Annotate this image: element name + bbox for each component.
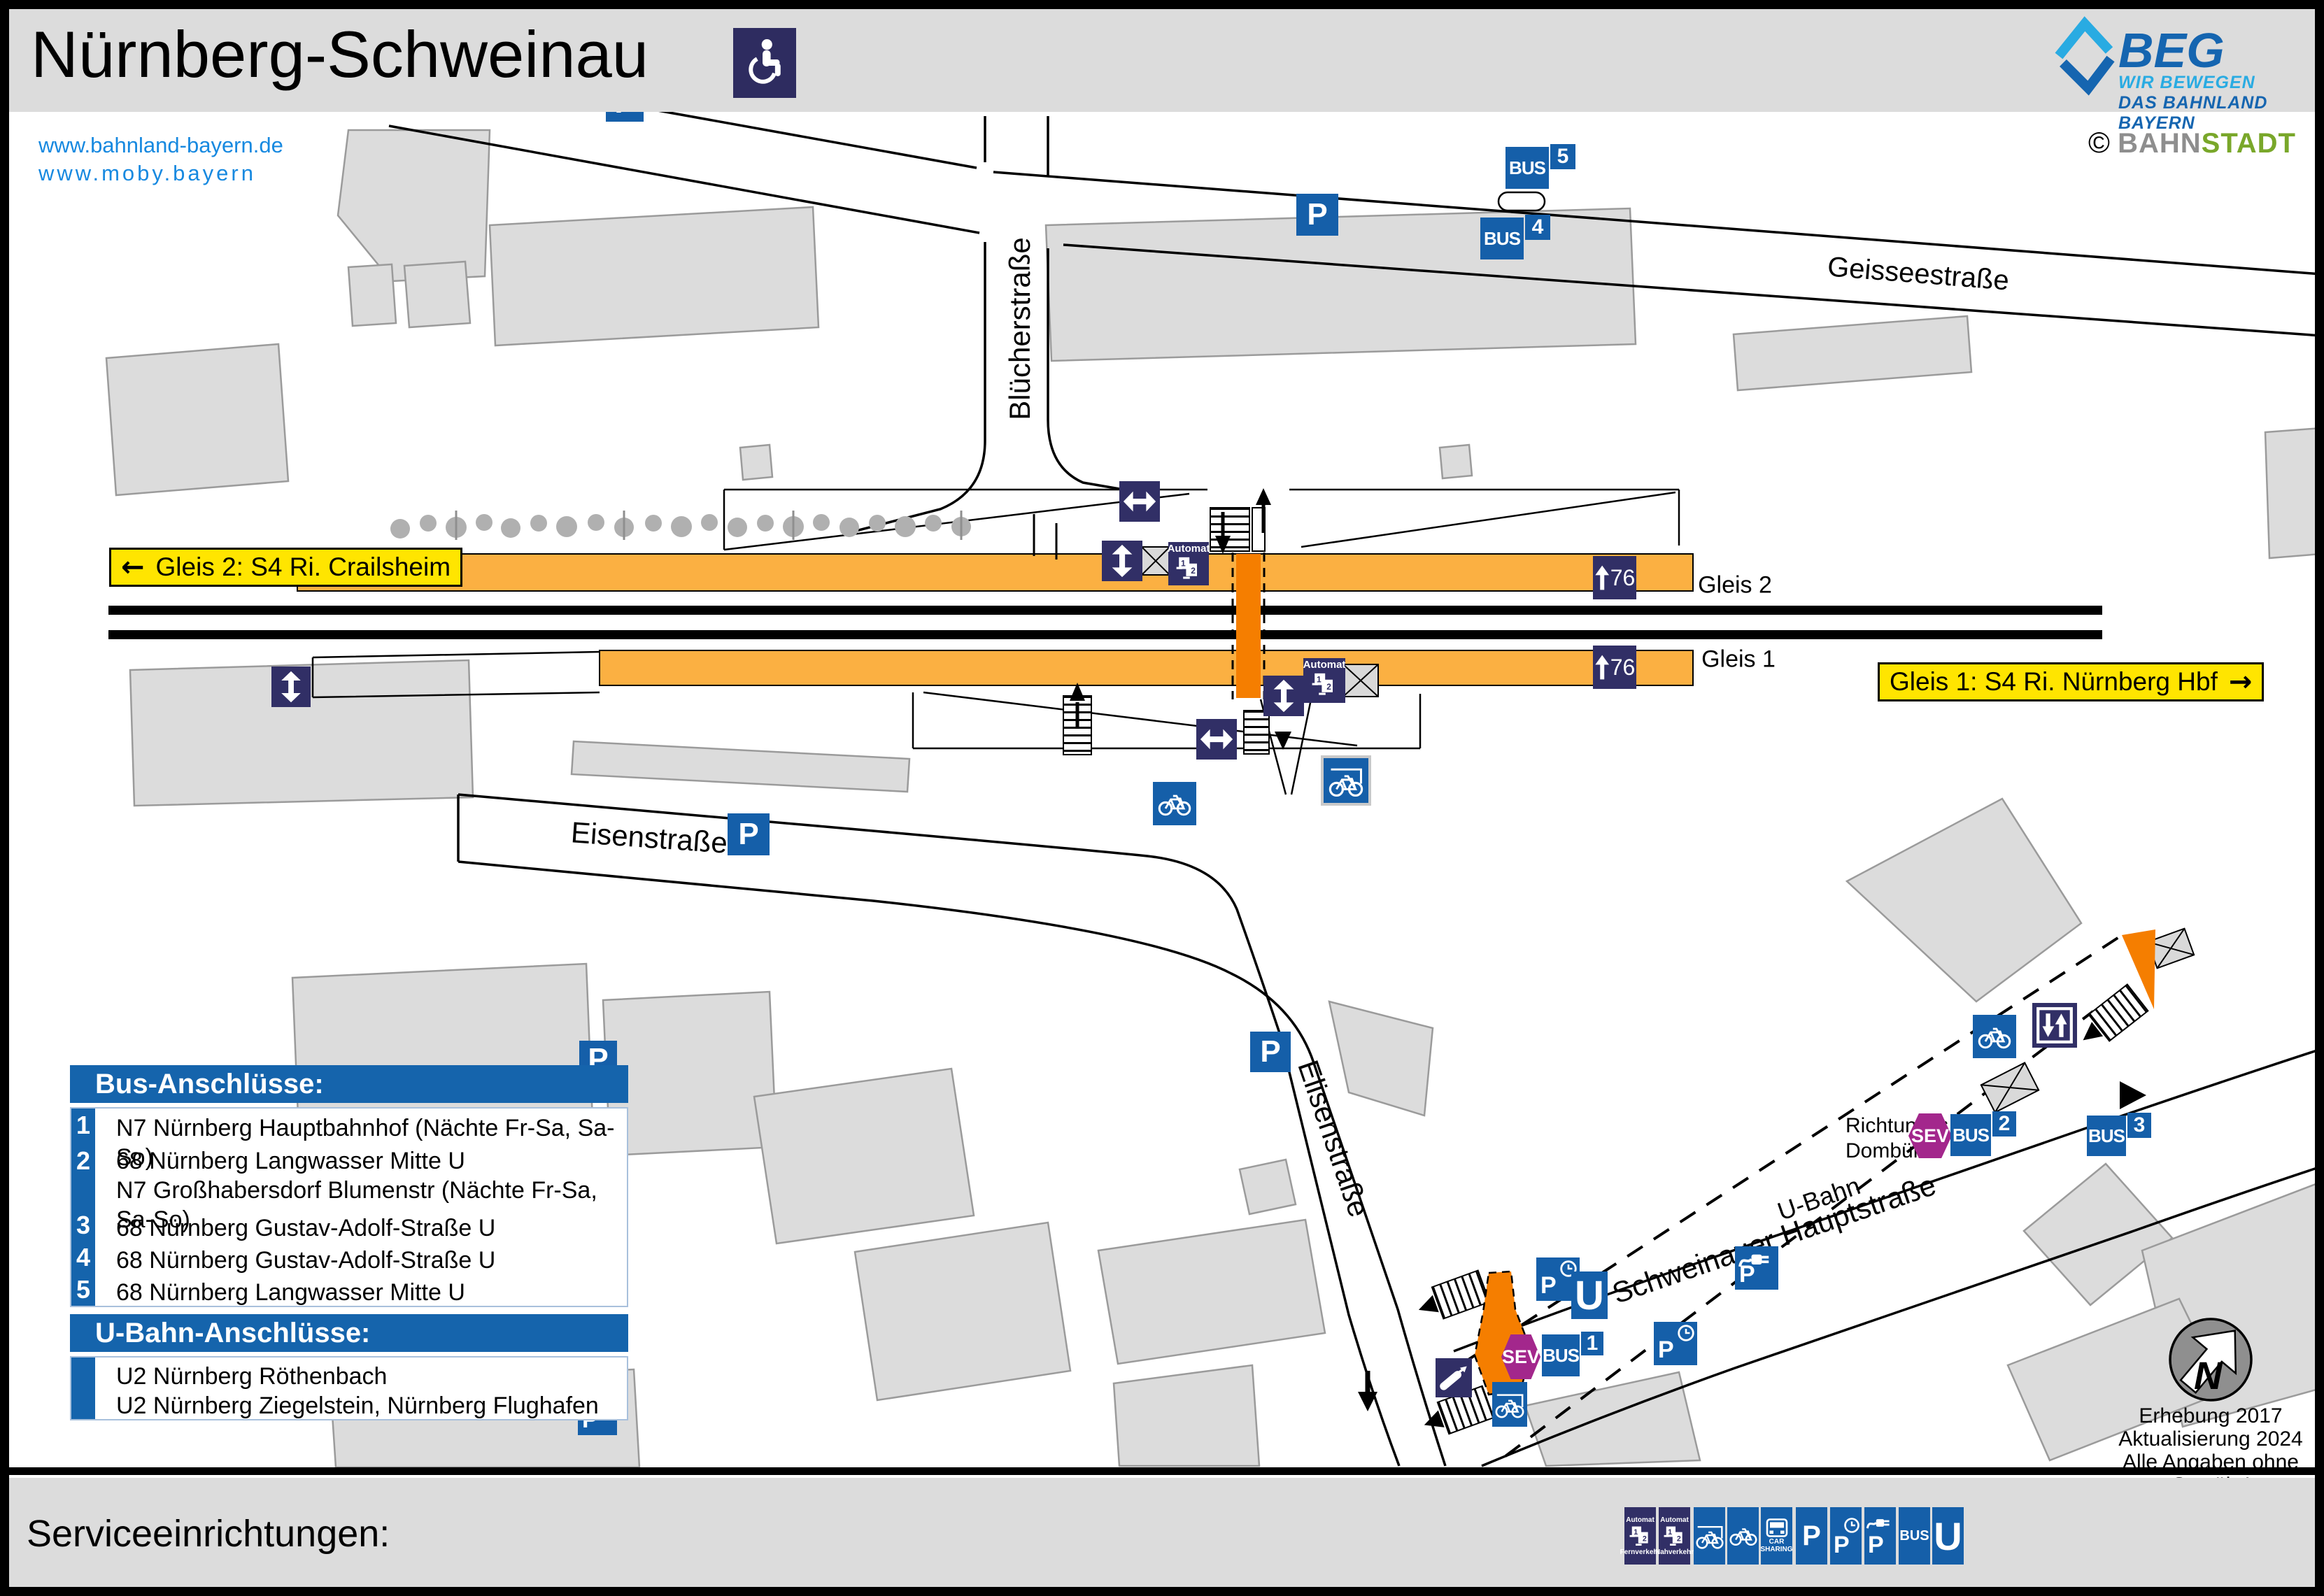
- service-bar-title: Serviceeinrichtungen:: [27, 1512, 390, 1555]
- map-bottom-border: [8, 1467, 2316, 1475]
- parking-time-icon: P: [1654, 1322, 1697, 1365]
- ticket-machine-sign: Automat: [1168, 542, 1209, 585]
- bike-parking-covered-icon: [1492, 1382, 1527, 1427]
- service-parking-time-icon: P: [1830, 1507, 1862, 1565]
- bus-stop-5-number: 5: [1550, 144, 1575, 169]
- copyright-icon: ©: [2088, 126, 2110, 159]
- direction-sign-gleis1: Gleis 1: S4 Ri. Nürnberg Hbf →: [1878, 662, 2264, 701]
- gleis2-label: Gleis 2: [1698, 572, 1772, 599]
- arrow-left-icon: ←: [121, 551, 145, 583]
- bus-stop-4-number: 4: [1525, 215, 1550, 240]
- legend-row-4: 4 68 Nürnberg Gustav-Adolf-Straße U: [71, 1241, 627, 1274]
- bus-stop-3-number: 3: [2127, 1113, 2151, 1138]
- link-bahnland-bayern[interactable]: www.bahnland-bayern.de: [38, 131, 283, 159]
- bus-stop-3: BUS: [2087, 1116, 2126, 1156]
- bus-stop-2-number: 2: [1992, 1111, 2016, 1137]
- station-map-page: 1 2: [0, 0, 2324, 1596]
- svg-text:N: N: [2194, 1353, 2223, 1397]
- service-car-sharing-icon: CARSHARING: [1761, 1507, 1792, 1565]
- service-automat-nahverkehr-icon: Automat Nahverkehr: [1659, 1507, 1690, 1565]
- ramp-structures: [313, 490, 1679, 795]
- crossing-arrow-horizontal-icon: [1119, 481, 1160, 522]
- crossing-arrow-horizontal-icon: [1196, 719, 1237, 760]
- legend-bus-title: Bus-Anschlüsse:: [70, 1065, 628, 1103]
- link-moby-bayern[interactable]: www.moby.bayern: [38, 159, 283, 187]
- bus-stop-2: BUS: [1950, 1114, 1991, 1156]
- legend-ubahn-body: U2 Nürnberg RöthenbachU2 Nürnberg Ziegel…: [70, 1356, 628, 1420]
- legend-ubahn-title: U-Bahn-Anschlüsse:: [70, 1314, 628, 1352]
- ticket-machine-sign: Automat: [1303, 658, 1345, 703]
- track-gleis2: [108, 606, 2102, 615]
- parking-icon: P: [728, 813, 770, 855]
- legend-row-5: 5 68 Nürnberg Langwasser Mitte U: [71, 1274, 627, 1306]
- crossing-arrow-vertical-icon: [1263, 676, 1304, 716]
- arrow-right-icon: →: [2229, 666, 2253, 698]
- platform-crossing: [1236, 554, 1261, 698]
- bike-parking-icon: [1973, 1015, 2016, 1058]
- platform-gleis1: [600, 650, 1693, 685]
- bus-stop-1-number: 1: [1581, 1332, 1603, 1355]
- service-parking-charging-icon: P: [1864, 1507, 1896, 1565]
- platform-height-sign: 76: [1593, 556, 1636, 599]
- platform-height-sign: 76: [1593, 646, 1636, 689]
- direction-sign-gleis2: ← Gleis 2: S4 Ri. Crailsheim: [109, 548, 462, 587]
- elevator-icon: [2032, 1003, 2077, 1048]
- service-parking-icon: P: [1796, 1507, 1827, 1565]
- service-bike-covered-icon: [1694, 1507, 1725, 1565]
- bus-stop-4: BUS: [1480, 218, 1524, 259]
- crossing-arrow-vertical-icon: [271, 667, 311, 707]
- service-automat-fernverkehr-icon: Automat Fernverkehr: [1624, 1507, 1656, 1565]
- legend: Bus-Anschlüsse: 1 N7 Nürnberg Hauptbahnh…: [70, 1065, 628, 1427]
- legend-row-1: 1 N7 Nürnberg Hauptbahnhof (Nächte Fr-Sa…: [71, 1109, 627, 1142]
- track-gleis1: [108, 630, 2102, 639]
- legend-row-2: 2 68 Nürnberg Langwasser Mitte UN7 Großh…: [71, 1142, 627, 1209]
- gleis1-label: Gleis 1: [1701, 646, 1776, 674]
- beg-tagline-1: WIR BEWEGEN: [2118, 73, 2324, 93]
- service-ubahn-icon: U: [1932, 1507, 1964, 1565]
- service-bike-icon: [1727, 1507, 1759, 1565]
- service-bus-icon: BUS: [1899, 1507, 1930, 1565]
- bus-bay-outline: [1498, 192, 1545, 211]
- parking-icon: P: [1296, 194, 1338, 236]
- beg-tagline-2: DAS BAHNLAND BAYERN: [2118, 93, 2324, 134]
- bus-stop-1: BUS: [1542, 1334, 1580, 1376]
- platform-gleis2: [297, 554, 1693, 591]
- legend-bus-body: 1 N7 Nürnberg Hauptbahnhof (Nächte Fr-Sa…: [70, 1107, 628, 1307]
- bike-parking-covered-icon: [1321, 755, 1371, 806]
- escalator-icon: [1436, 1358, 1472, 1397]
- ubahn-station-icon: U: [1571, 1271, 1608, 1319]
- bus-stop-5: BUS: [1505, 147, 1549, 189]
- street-label-bluecherstrasse: Blücherstraße: [1003, 237, 1037, 420]
- wheelchair-icon: [733, 28, 796, 98]
- parking-icon: P: [1250, 1032, 1291, 1072]
- website-links: www.bahnland-bayern.de www.moby.bayern: [38, 131, 283, 187]
- parking-charging-icon: P: [1735, 1246, 1778, 1290]
- crossing-arrow-vertical-icon: [1102, 541, 1142, 581]
- bike-parking-icon: [1153, 782, 1196, 825]
- beg-wordmark: BEG WIR BEWEGEN DAS BAHNLAND BAYERN: [2118, 28, 2324, 134]
- page-title: Nürnberg-Schweinau: [31, 17, 649, 92]
